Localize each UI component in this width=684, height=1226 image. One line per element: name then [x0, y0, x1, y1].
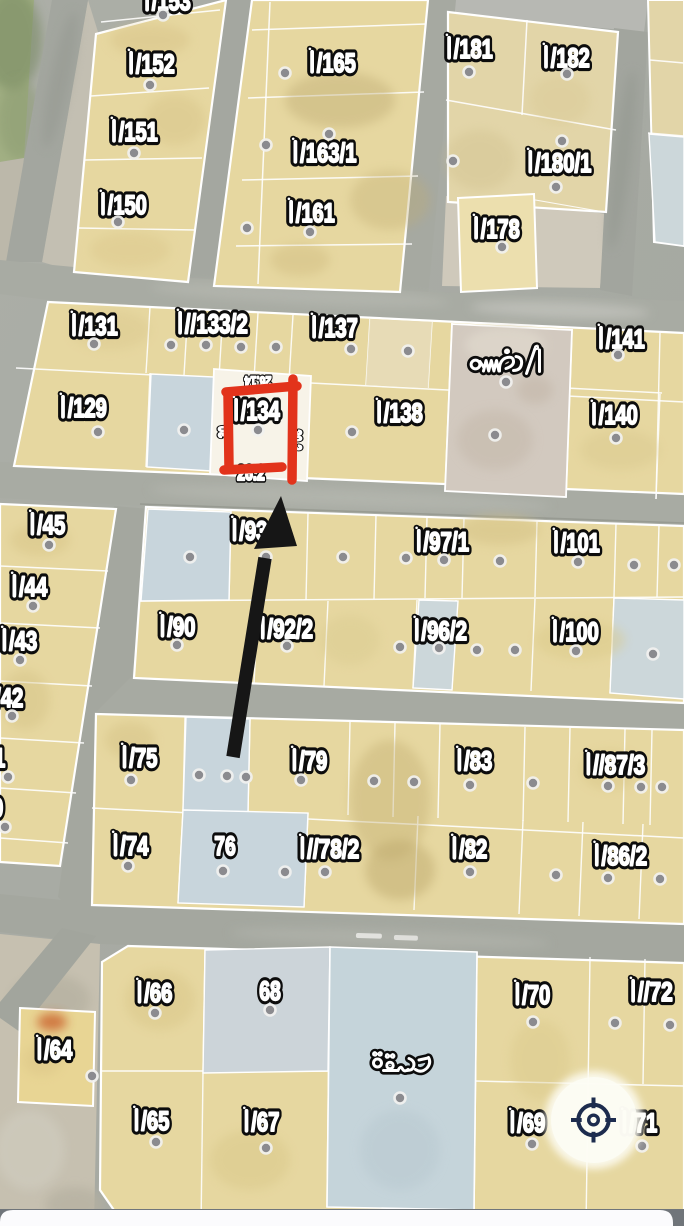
svg-text:/100: /100 [560, 617, 599, 647]
svg-text:/65: /65 [141, 1106, 169, 1136]
svg-text:/134: /134 [241, 396, 280, 426]
svg-text:/101: /101 [561, 528, 600, 558]
svg-text:/86/2: /86/2 [602, 841, 648, 871]
svg-text:/41: /41 [0, 743, 5, 773]
svg-text:/90: /90 [167, 612, 195, 642]
svg-text:/70: /70 [522, 980, 550, 1010]
svg-text:/66: /66 [144, 978, 172, 1008]
svg-text:/151: /151 [119, 117, 158, 147]
svg-text:76: 76 [214, 831, 236, 861]
svg-text:/131: /131 [79, 311, 118, 341]
svg-text:/83: /83 [464, 746, 492, 776]
svg-text:/181: /181 [454, 34, 493, 64]
svg-text:/150: /150 [108, 190, 147, 220]
svg-text:/161: /161 [296, 198, 335, 228]
svg-text:/74: /74 [120, 831, 148, 861]
svg-text:/180/1: /180/1 [535, 148, 591, 178]
svg-text:/40: /40 [0, 793, 3, 823]
svg-text://87/3: //87/3 [593, 750, 645, 780]
svg-text:/75: /75 [129, 743, 157, 773]
svg-text:/44: /44 [19, 572, 47, 602]
svg-text://78/2: //78/2 [307, 834, 359, 864]
svg-text:/69: /69 [517, 1108, 545, 1138]
svg-text:/82: /82 [459, 834, 487, 864]
svg-text:/129: /129 [68, 393, 107, 423]
svg-text:/43: /43 [9, 626, 37, 656]
svg-text:/152: /152 [136, 49, 175, 79]
svg-text:/163/1: /163/1 [300, 138, 356, 168]
svg-text:/165: /165 [317, 48, 356, 78]
svg-text:/137: /137 [319, 313, 358, 343]
svg-text:/96/2: /96/2 [421, 616, 467, 646]
svg-text:/64: /64 [44, 1035, 72, 1065]
svg-text:68: 68 [259, 976, 281, 1006]
svg-text:/138: /138 [384, 398, 423, 428]
svg-text:/67: /67 [251, 1107, 279, 1137]
svg-text://72: //72 [638, 977, 673, 1007]
svg-text://133/2: //133/2 [185, 309, 248, 339]
svg-text:/141: /141 [606, 324, 645, 354]
svg-text:/79: /79 [299, 746, 327, 776]
svg-text:/42: /42 [0, 683, 23, 713]
svg-text:/178: /178 [481, 214, 520, 244]
svg-text:/92/2: /92/2 [267, 614, 313, 644]
svg-text:/45: /45 [37, 510, 65, 540]
svg-text:/140: /140 [599, 400, 638, 430]
svg-text:/97/1: /97/1 [423, 527, 469, 557]
